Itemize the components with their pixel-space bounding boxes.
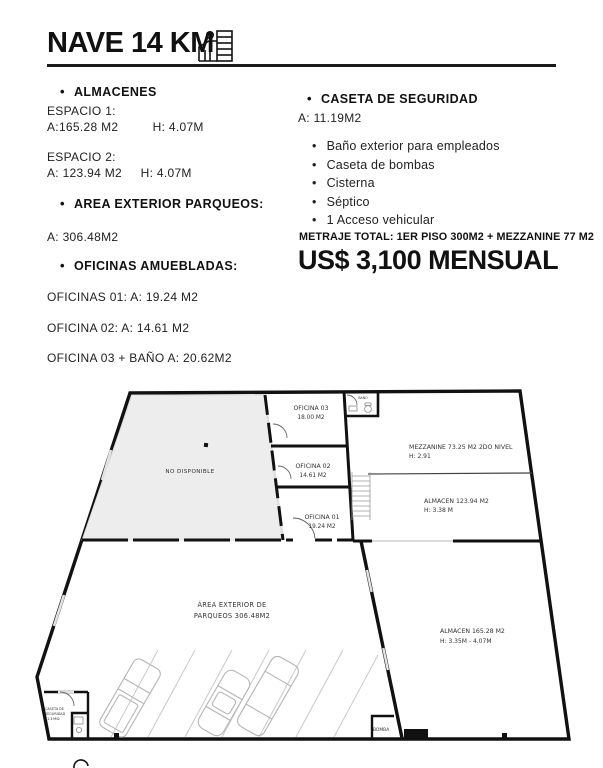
north-arrow-partial: [74, 760, 88, 768]
label-bano: BAÑO: [358, 395, 368, 400]
label-caseta-1: CASETA DE: [45, 707, 64, 711]
label-almacen165-height: H: 3.35M - 4.07M: [440, 638, 492, 645]
label-no-disponible: NO DISPONIBLE: [165, 469, 214, 475]
label-mezzanine: MEZZANINE 73.25 M2 2DO NIVEL: [409, 444, 513, 451]
label-bomba: BOMBA: [373, 727, 389, 733]
no-disponible-area: [82, 395, 283, 540]
label-almacen165: ALMACEN 165.28 M2: [440, 628, 505, 635]
label-oficina02-area: 14.61 M2: [299, 473, 326, 479]
label-caseta-3: 11.19M2: [45, 717, 60, 721]
label-oficina01-area: 19.24 M2: [308, 524, 335, 530]
label-mezzanine-height: H: 2.91: [409, 453, 431, 460]
label-almacen123: ALMACEN 123.94 M2: [424, 498, 489, 505]
label-oficina03-name: OFICINA 03: [293, 405, 328, 412]
label-almacen123-height: H: 3.38 M: [424, 507, 453, 514]
label-parqueos-2: PARQUEOS 306.48M2: [194, 612, 270, 620]
floorplan: NO DISPONIBLE OFICINA 03 18.00 M2 OFICIN…: [0, 0, 603, 768]
label-oficina03-area: 18.00 M2: [297, 415, 324, 421]
gate-block: [404, 729, 428, 738]
label-parqueos-1: ÁREA EXTERIOR DE: [197, 600, 266, 609]
listing-flyer: NAVE 14 KM •ALMACENES ESPACIO 1: A:165.2…: [0, 0, 603, 768]
label-oficina01-name: OFICINA 01: [304, 514, 339, 521]
label-oficina02-name: OFICINA 02: [295, 463, 330, 470]
label-caseta-2: SEGURIDAD: [45, 712, 66, 716]
